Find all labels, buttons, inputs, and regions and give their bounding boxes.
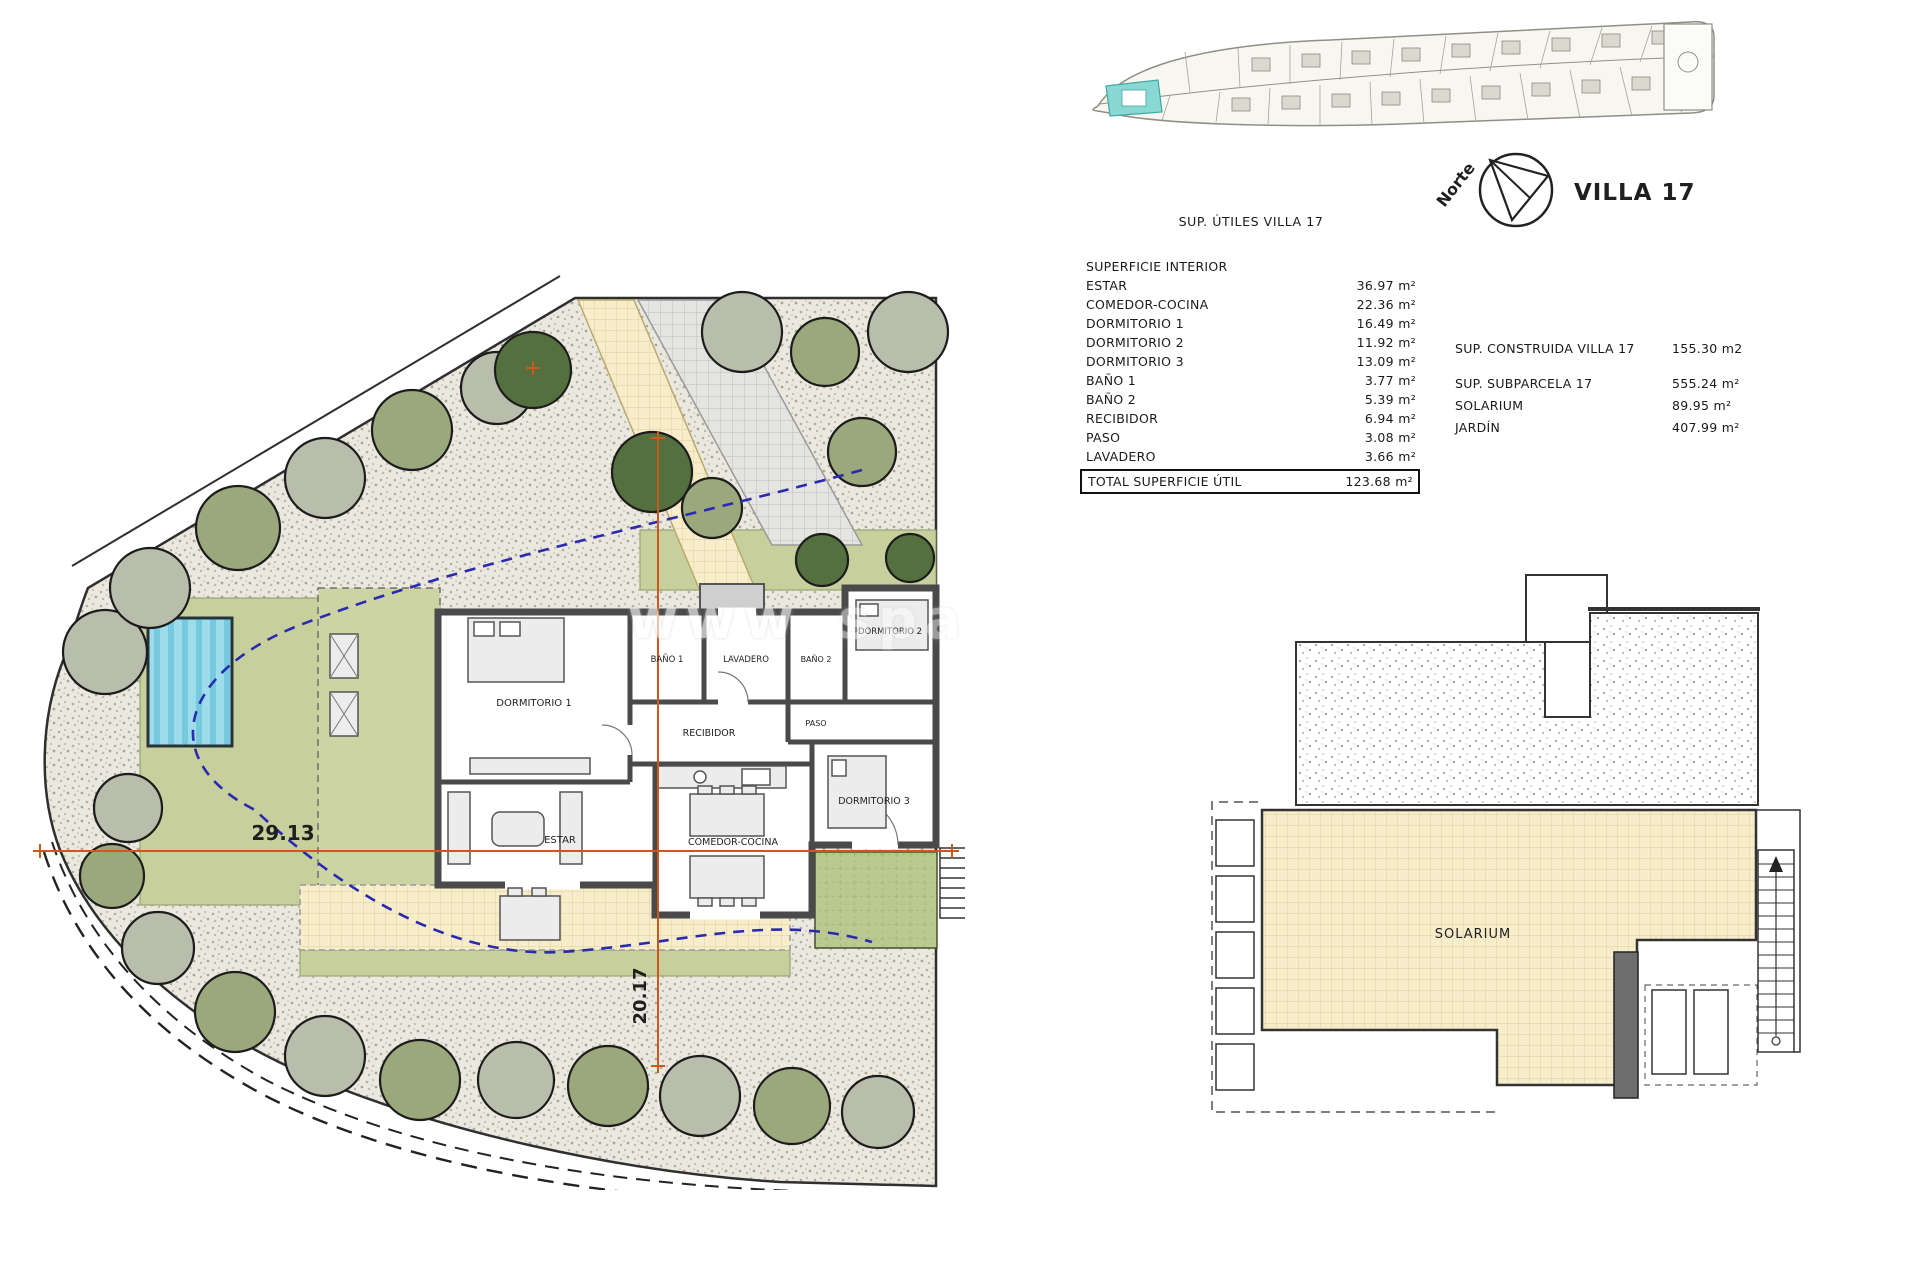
room-label-lavadero: LAVADERO [723,655,769,665]
row-label: PASO [1086,428,1120,447]
row-label: RECIBIDOR [1086,409,1158,428]
solarium-plan: SOLARIUM [1195,545,1840,1130]
room-label-dormitorio2: DORMITORIO 2 [858,627,922,637]
room-label-recibidor: RECIBIDOR [683,728,736,739]
dim-horizontal-label: 29.13 [251,821,314,845]
summary-label: SOLARIUM [1455,395,1672,417]
site-plan: 29.13 20.17 DORMITORIO 1 BAÑO 1 LAVADERO… [25,270,965,1190]
summary-label: SUP. SUBPARCELA 17 [1455,373,1672,395]
summary-value: 555.24 m² [1672,373,1790,395]
summary-label: SUP. CONSTRUIDA VILLA 17 [1455,338,1672,360]
exterior-stairs [940,848,965,918]
row-value: 6.94 m² [1365,409,1416,428]
stairs [1758,850,1794,1052]
row-value: 16.49 m² [1357,314,1416,333]
summary-value: 155.30 m2 [1672,338,1790,360]
solarium-wall-bar [1614,952,1638,1098]
row-value: 22.36 m² [1357,295,1416,314]
summary-row: SOLARIUM89.95 m² [1455,395,1790,417]
summary-block: SUP. CONSTRUIDA VILLA 17155.30 m2 SUP. S… [1455,338,1790,439]
table-row: BAÑO 25.39 m² [1086,390,1416,409]
total-value: 123.68 m² [1345,472,1413,491]
dim-vertical-label: 20.17 [630,968,651,1025]
table-row: DORMITORIO 313.09 m² [1086,352,1416,371]
row-label: DORMITORIO 1 [1086,314,1184,333]
table-total-row: TOTAL SUPERFICIE ÚTIL 123.68 m² [1080,469,1420,494]
table-row: ESTAR36.97 m² [1086,276,1416,295]
row-label: BAÑO 1 [1086,371,1136,390]
row-label: COMEDOR-COCINA [1086,295,1209,314]
row-value: 13.09 m² [1357,352,1416,371]
room-label-estar: ESTAR [544,835,576,846]
room-label-dormitorio1: DORMITORIO 1 [496,698,571,709]
areas-table-title: SUP. ÚTILES VILLA 17 [1086,214,1416,229]
row-label: ESTAR [1086,276,1127,295]
summary-value: 407.99 m² [1672,417,1790,439]
table-row: COMEDOR-COCINA22.36 m² [1086,295,1416,314]
areas-section-header: SUPERFICIE INTERIOR [1086,257,1416,276]
ac-unit [1652,990,1686,1074]
highlighted-villa-footprint [1122,90,1146,106]
garden-strip-bottom [300,950,790,976]
pool [148,618,232,746]
table-row: PASO3.08 m² [1086,428,1416,447]
table-row: RECIBIDOR6.94 m² [1086,409,1416,428]
summary-row: SUP. SUBPARCELA 17555.24 m² [1455,373,1790,395]
pergola-posts [1216,820,1254,1090]
room-label-bano1: BAÑO 1 [651,654,684,665]
summary-label: JARDÍN [1455,417,1672,439]
row-value: 5.39 m² [1365,390,1416,409]
plan-sheet: { "key_plan": { "north_label": "Norte", … [0,0,1920,1280]
summary-value: 89.95 m² [1672,395,1790,417]
areas-table: SUP. ÚTILES VILLA 17 SUPERFICIE INTERIOR… [1086,214,1416,494]
villa-title: VILLA 17 [1574,180,1695,206]
table-row: BAÑO 13.77 m² [1086,371,1416,390]
room-label-comedor: COMEDOR-COCINA [688,837,778,848]
summary-row: SUP. CONSTRUIDA VILLA 17155.30 m2 [1455,338,1790,360]
table-row: DORMITORIO 116.49 m² [1086,314,1416,333]
row-label: BAÑO 2 [1086,390,1136,409]
room-label-bano2: BAÑO 2 [801,654,832,664]
table-row: DORMITORIO 211.92 m² [1086,333,1416,352]
ac-unit [1694,990,1728,1074]
row-value: 3.77 m² [1365,371,1416,390]
row-value: 11.92 m² [1357,333,1416,352]
key-plan: Norte VILLA 17 [1070,10,1740,240]
row-value: 3.66 m² [1365,447,1416,466]
room-label-paso: PASO [805,719,826,728]
row-label: LAVADERO [1086,447,1156,466]
roof-area [1296,613,1758,805]
row-value: 3.08 m² [1365,428,1416,447]
total-label: TOTAL SUPERFICIE ÚTIL [1088,472,1242,491]
room-label-dormitorio3: DORMITORIO 3 [838,796,910,807]
section-header-label: SUPERFICIE INTERIOR [1086,257,1228,276]
summary-row: JARDÍN407.99 m² [1455,417,1790,439]
north-compass-icon [1480,154,1552,226]
solarium-label: SOLARIUM [1435,927,1512,942]
clubhouse-plot [1664,24,1712,110]
row-label: DORMITORIO 2 [1086,333,1184,352]
north-label: Norte [1433,159,1479,211]
row-label: DORMITORIO 3 [1086,352,1184,371]
table-row: LAVADERO3.66 m² [1086,447,1416,466]
row-value: 36.97 m² [1357,276,1416,295]
